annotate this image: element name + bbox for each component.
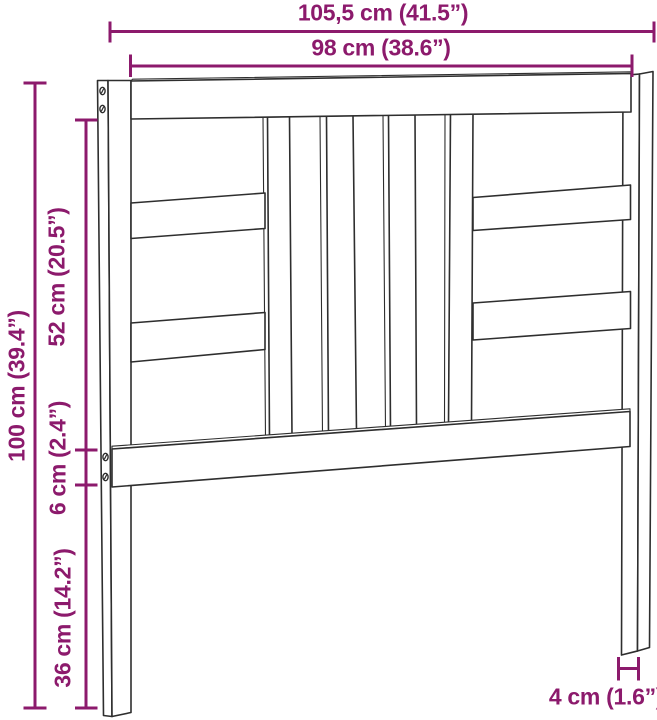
slat-1 (263, 117, 292, 438)
bottom-rail-front-face (112, 412, 630, 488)
label-leg-width: 4 cm (1.6”) (549, 686, 657, 709)
left-board-lower (131, 313, 265, 363)
headboard-structure (98, 72, 654, 717)
slat-2 (320, 116, 357, 434)
right-board-lower (473, 292, 631, 341)
right-post-side-face (638, 72, 654, 652)
slat-3 (383, 115, 417, 430)
slat-4 (445, 114, 474, 425)
label-inner-width: 98 cm (38.6”) (311, 37, 450, 60)
dimension-stacked-heights (75, 120, 98, 708)
slat-front-face (327, 116, 357, 434)
slat-front-face (389, 115, 417, 429)
right-post-front-face (622, 74, 640, 655)
label-total-height: 100 cm (39.4”) (6, 310, 29, 462)
left-board-upper (131, 193, 265, 239)
slat-front-face (449, 114, 474, 425)
label-total-width: 105,5 cm (41.5”) (298, 2, 468, 25)
top-rail-front-face (131, 74, 631, 120)
label-upper-section-height: 52 cm (20.5”) (46, 207, 69, 346)
dimension-leg-width (619, 657, 639, 681)
left-post-front-face (108, 81, 131, 717)
right-board-upper (473, 185, 631, 231)
headboard-drawing (0, 0, 657, 720)
slat-front-face (268, 117, 293, 438)
dimension-diagram: 105,5 cm (41.5”) 98 cm (38.6”) 100 cm (3… (0, 0, 657, 720)
label-rail-thickness: 6 cm (2.4”) (47, 401, 70, 515)
label-leg-height: 36 cm (14.2”) (52, 548, 75, 687)
